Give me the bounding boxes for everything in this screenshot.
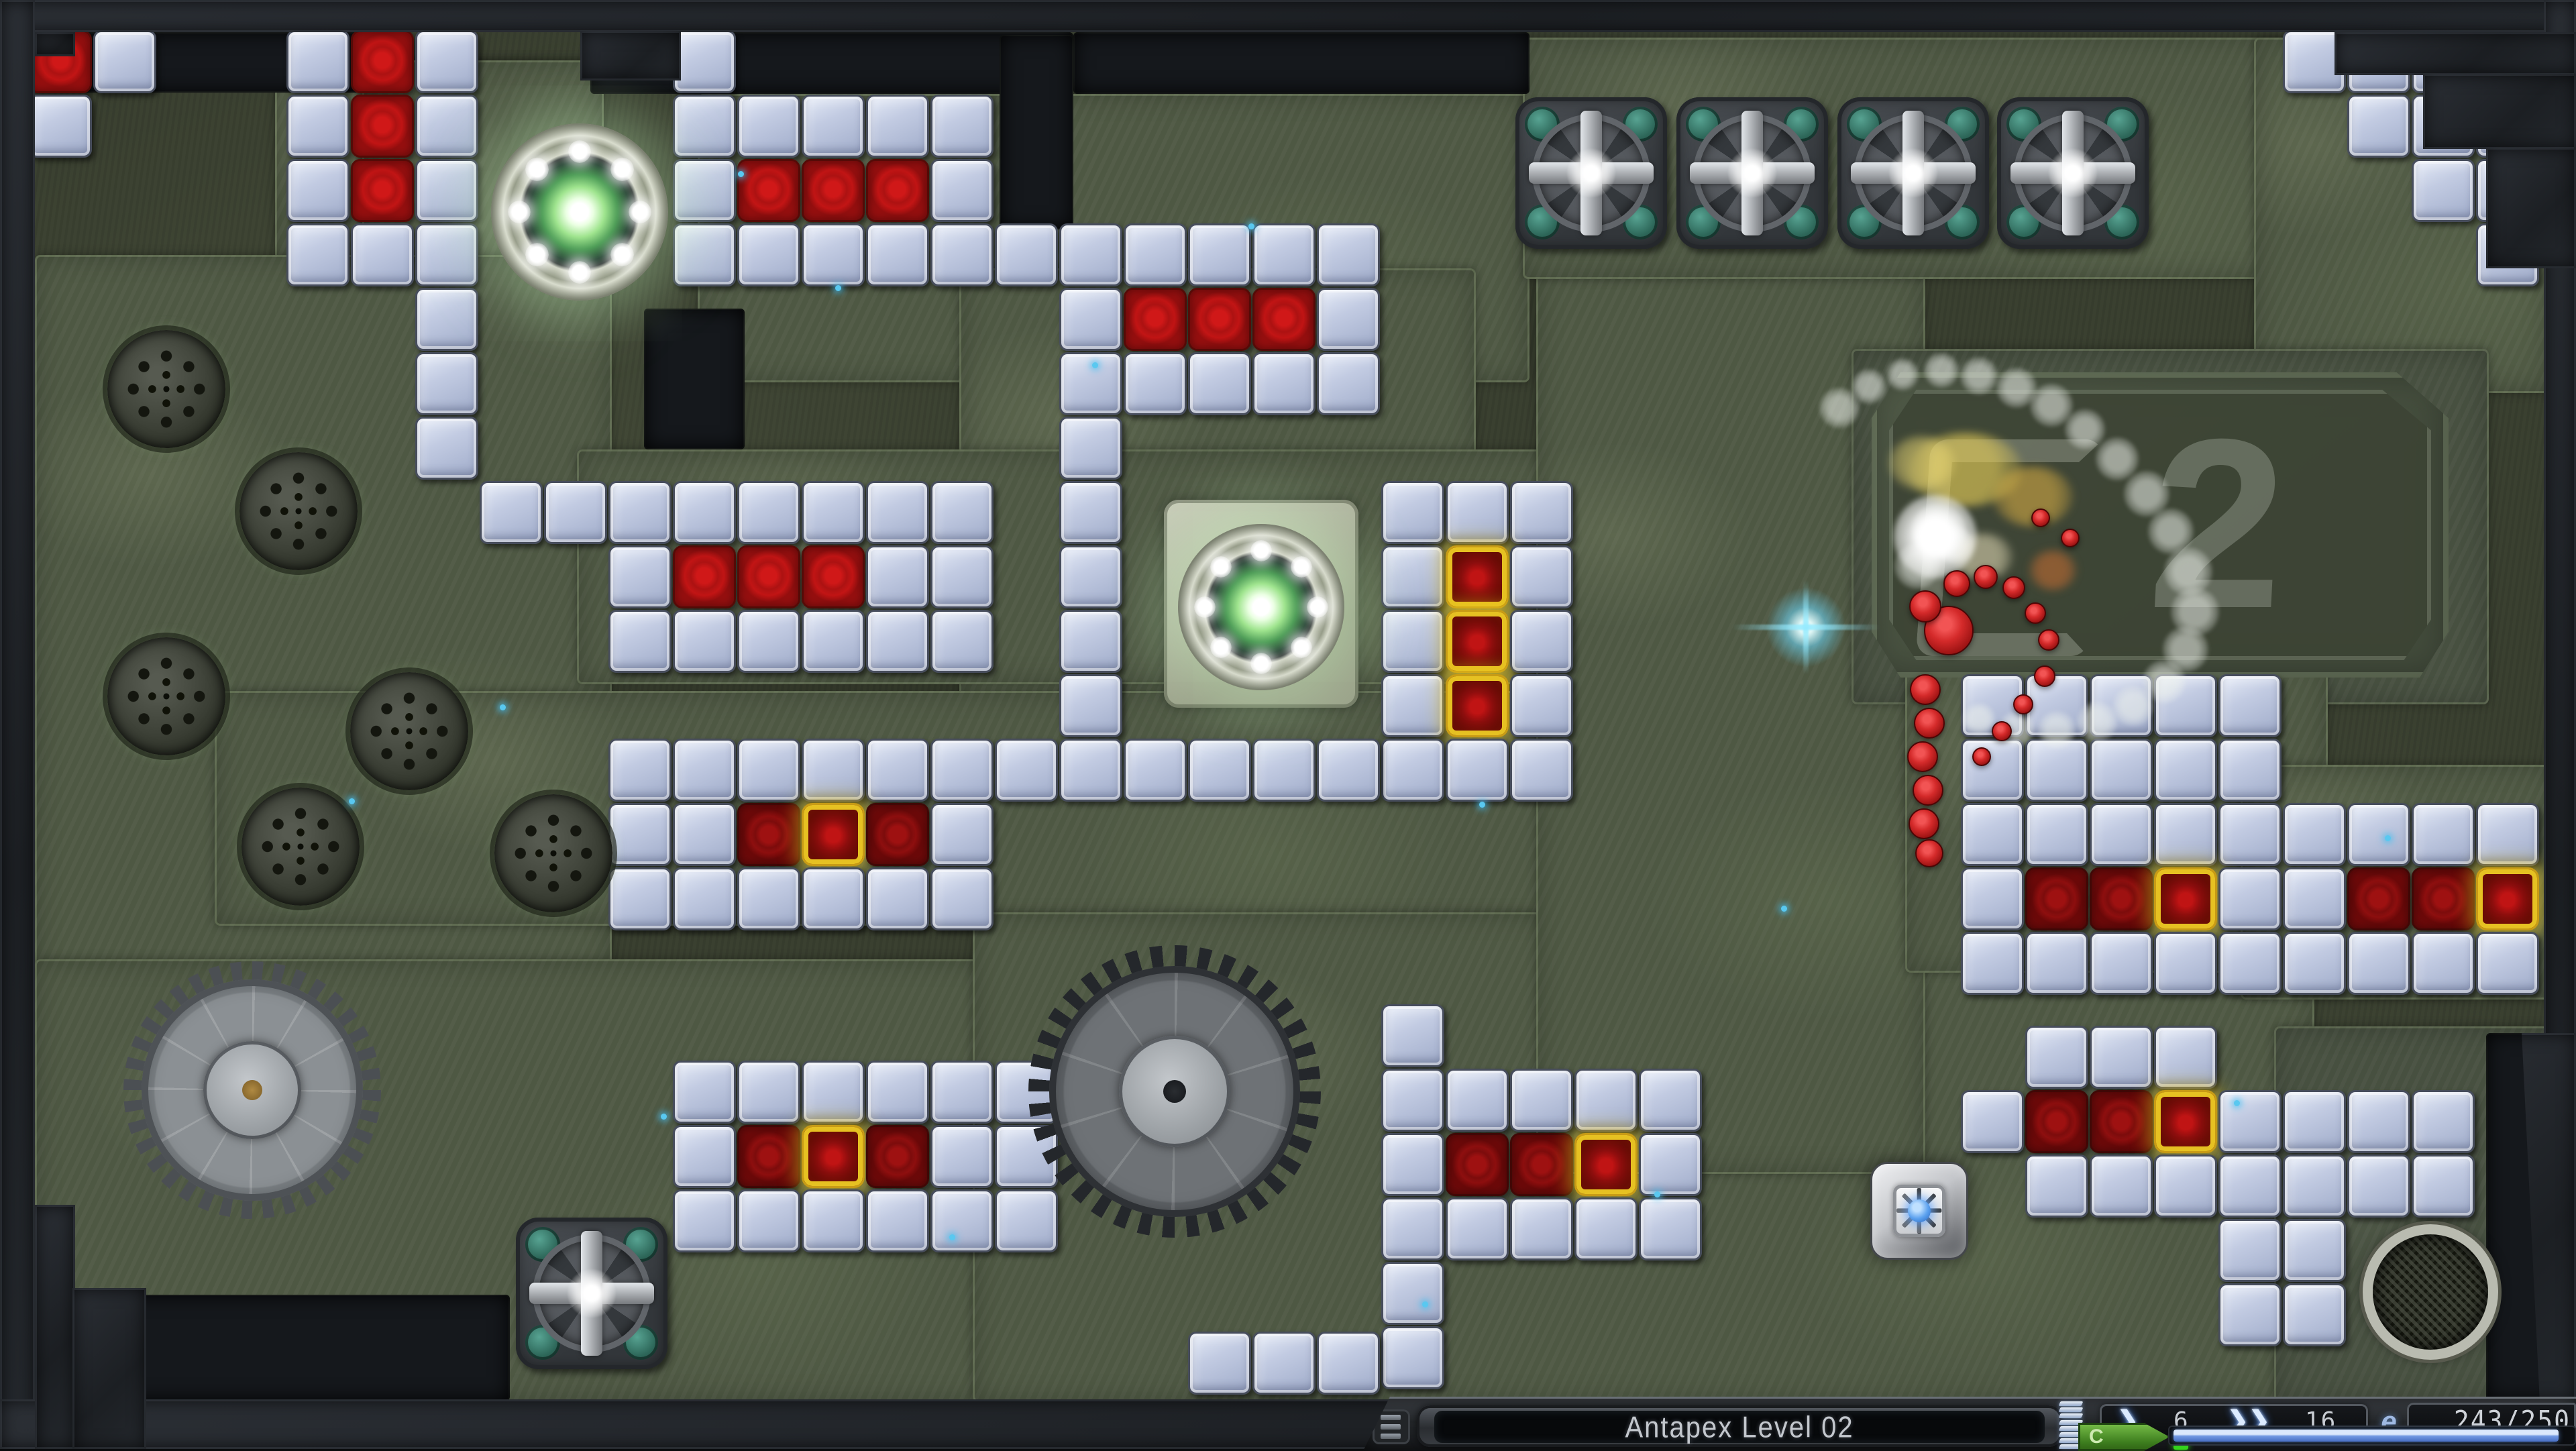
- critical-block-tile[interactable]: [2476, 867, 2539, 930]
- damaged-block-tile[interactable]: [2090, 1090, 2153, 1153]
- block-tile[interactable]: [930, 867, 994, 930]
- hud-bar: Antapex Level 02 ❯ 6 ❯❯ 16 e 243/250 C: [1363, 1397, 2576, 1451]
- enemy-creep[interactable]: [1972, 747, 1991, 766]
- enemy-creep[interactable]: [2025, 602, 2046, 624]
- damaged-block-tile[interactable]: [351, 95, 414, 158]
- block-tile[interactable]: [415, 352, 478, 415]
- block-tile[interactable]: [1381, 1133, 1444, 1196]
- block-tile[interactable]: [1252, 352, 1316, 415]
- block-tile[interactable]: [1252, 223, 1316, 286]
- block-tile[interactable]: [1317, 352, 1380, 415]
- block-tile[interactable]: [1059, 288, 1122, 351]
- block-tile[interactable]: [1381, 481, 1444, 544]
- block-tile[interactable]: [1059, 739, 1122, 802]
- ladder-slot: [2059, 1407, 2084, 1412]
- damaged-block-tile[interactable]: [1446, 1133, 1509, 1196]
- pit-region: [644, 309, 745, 449]
- block-tile[interactable]: [2154, 803, 2217, 866]
- damaged-block-tile[interactable]: [866, 803, 929, 866]
- portal-lamp: [1250, 653, 1272, 674]
- block-tile[interactable]: [866, 610, 929, 673]
- enemy-creep[interactable]: [1915, 839, 1943, 867]
- enemy-creep[interactable]: [1943, 570, 1970, 597]
- portal-lamp: [1194, 596, 1216, 618]
- block-tile[interactable]: [415, 30, 478, 93]
- block-tile[interactable]: [673, 159, 736, 222]
- map-frame: [2334, 32, 2576, 75]
- vent-grate: [107, 330, 225, 448]
- damaged-block-tile[interactable]: [2025, 867, 2088, 930]
- block-tile[interactable]: [415, 288, 478, 351]
- block-tile[interactable]: [737, 95, 800, 158]
- damaged-block-tile[interactable]: [737, 1125, 800, 1188]
- block-tile[interactable]: [1059, 352, 1122, 415]
- block-tile[interactable]: [930, 803, 994, 866]
- block-tile[interactable]: [2283, 932, 2346, 995]
- block-tile[interactable]: [673, 803, 736, 866]
- enemy-creep[interactable]: [2002, 576, 2025, 599]
- block-tile[interactable]: [737, 1061, 800, 1124]
- block-tile[interactable]: [2025, 1026, 2088, 1089]
- portal-lamp: [1210, 556, 1232, 578]
- block-tile[interactable]: [866, 95, 929, 158]
- block-tile[interactable]: [737, 1189, 800, 1252]
- damaged-block-tile[interactable]: [2347, 867, 2410, 930]
- block-tile[interactable]: [415, 417, 478, 480]
- block-tile[interactable]: [1188, 352, 1251, 415]
- block-tile[interactable]: [2283, 1154, 2346, 1218]
- block-tile[interactable]: [1381, 1262, 1444, 1325]
- ladder-slot: [2059, 1413, 2084, 1418]
- damaged-block-tile[interactable]: [1510, 1133, 1573, 1196]
- enemy-creep[interactable]: [1914, 708, 1945, 739]
- block-tile[interactable]: [802, 1189, 865, 1252]
- block-tile[interactable]: [2090, 803, 2153, 866]
- portal-lamp: [1291, 637, 1312, 658]
- block-tile[interactable]: [1639, 1133, 1702, 1196]
- block-tile[interactable]: [415, 159, 478, 222]
- block-tile[interactable]: [930, 95, 994, 158]
- damaged-block-tile[interactable]: [1124, 288, 1187, 351]
- level-name: Antapex Level 02: [1434, 1410, 2045, 1445]
- block-tile[interactable]: [673, 610, 736, 673]
- explosion-flame: [2029, 550, 2076, 590]
- critical-block-tile[interactable]: [1574, 1133, 1638, 1196]
- block-tile[interactable]: [802, 1061, 865, 1124]
- block-tile[interactable]: [1124, 223, 1187, 286]
- portal-lamp: [1307, 596, 1328, 618]
- block-tile[interactable]: [673, 481, 736, 544]
- block-tile[interactable]: [930, 481, 994, 544]
- critical-block-tile[interactable]: [802, 803, 865, 866]
- block-tile[interactable]: [1252, 739, 1316, 802]
- block-tile[interactable]: [802, 223, 865, 286]
- smoke-puff: [2096, 437, 2139, 480]
- portal-lamp: [508, 201, 531, 223]
- fan-unit: [1837, 97, 1989, 249]
- map-frame: [35, 32, 75, 56]
- vent-grate: [239, 452, 358, 570]
- map-frame: [2423, 74, 2576, 149]
- block-tile[interactable]: [1510, 545, 1573, 608]
- gear-wheel: [123, 961, 381, 1219]
- energy-spark: [2234, 1100, 2240, 1106]
- block-tile[interactable]: [673, 1189, 736, 1252]
- block-tile[interactable]: [415, 95, 478, 158]
- fan-unit: [1997, 97, 2149, 249]
- fan-core: [1728, 149, 1776, 197]
- enemy-creep[interactable]: [1907, 741, 1938, 772]
- enemy-creep[interactable]: [1909, 808, 1939, 839]
- block-tile[interactable]: [1381, 1069, 1444, 1132]
- block-tile[interactable]: [2347, 1090, 2410, 1153]
- block-tile[interactable]: [1961, 867, 2024, 930]
- block-tile[interactable]: [995, 1189, 1058, 1252]
- block-tile[interactable]: [930, 159, 994, 222]
- block-tile[interactable]: [1059, 223, 1122, 286]
- block-tile[interactable]: [866, 1189, 929, 1252]
- block-tile[interactable]: [866, 739, 929, 802]
- block-tile[interactable]: [1188, 1332, 1251, 1395]
- block-tile[interactable]: [1059, 481, 1122, 544]
- block-tile[interactable]: [1510, 1069, 1573, 1132]
- energy-spark: [1092, 362, 1098, 368]
- energy-portal: [491, 123, 668, 301]
- portal-lamp: [610, 243, 633, 266]
- enemy-creep[interactable]: [2038, 629, 2059, 651]
- block-tile[interactable]: [1381, 674, 1444, 737]
- enemy-creep[interactable]: [1974, 565, 1998, 589]
- block-tile[interactable]: [802, 95, 865, 158]
- fan-core: [2049, 149, 2097, 197]
- block-tile[interactable]: [1639, 1069, 1702, 1132]
- block-tile[interactable]: [415, 223, 478, 286]
- block-tile[interactable]: [1961, 739, 2024, 802]
- block-tile[interactable]: [1574, 1197, 1638, 1260]
- block-tile[interactable]: [1124, 352, 1187, 415]
- block-tile[interactable]: [930, 739, 994, 802]
- block-tile[interactable]: [2347, 932, 2410, 995]
- pit-region: [1073, 32, 1529, 94]
- fan-unit: [1515, 97, 1667, 249]
- smoke-puff: [2113, 686, 2153, 726]
- critical-block-tile[interactable]: [1446, 674, 1509, 737]
- energy-spark: [835, 285, 841, 291]
- block-tile[interactable]: [802, 867, 865, 930]
- block-tile[interactable]: [1639, 1197, 1702, 1260]
- vent-grate: [107, 637, 225, 755]
- block-tile[interactable]: [930, 1125, 994, 1188]
- energy-spark: [1654, 1191, 1660, 1197]
- enemy-creep[interactable]: [2061, 529, 2080, 547]
- portal-lamp: [568, 140, 591, 163]
- enemy-creep[interactable]: [1992, 721, 2012, 741]
- block-tile[interactable]: [673, 1125, 736, 1188]
- block-tile[interactable]: [673, 1061, 736, 1124]
- damaged-block-tile[interactable]: [673, 545, 736, 608]
- block-tile[interactable]: [2283, 803, 2346, 866]
- block-tile[interactable]: [1381, 545, 1444, 608]
- block-tile[interactable]: [1510, 610, 1573, 673]
- block-tile[interactable]: [2090, 932, 2153, 995]
- smoke-puff: [2077, 702, 2117, 742]
- fan-unit: [516, 1218, 667, 1369]
- damaged-block-tile[interactable]: [866, 1125, 929, 1188]
- block-tile[interactable]: [29, 95, 92, 158]
- block-tile[interactable]: [737, 223, 800, 286]
- block-tile[interactable]: [1446, 739, 1509, 802]
- block-tile[interactable]: [2154, 932, 2217, 995]
- pit-region: [1000, 35, 1073, 229]
- critical-block-tile[interactable]: [1446, 610, 1509, 673]
- damaged-block-tile[interactable]: [2412, 867, 2475, 930]
- damaged-block-tile[interactable]: [802, 545, 865, 608]
- energy-spark: [1248, 223, 1254, 229]
- block-tile[interactable]: [2412, 1090, 2475, 1153]
- block-tile[interactable]: [2218, 1090, 2282, 1153]
- block-tile[interactable]: [2218, 867, 2282, 930]
- damaged-block-tile[interactable]: [351, 30, 414, 93]
- vent-grate: [494, 794, 612, 912]
- portal-lamp: [1210, 637, 1232, 658]
- block-tile[interactable]: [286, 159, 350, 222]
- block-tile[interactable]: [930, 1189, 994, 1252]
- smoke-puff: [1960, 357, 1998, 394]
- block-tile[interactable]: [608, 867, 672, 930]
- block-tile[interactable]: [2154, 1026, 2217, 1089]
- energy-spark: [949, 1234, 955, 1240]
- map-frame: [72, 1288, 146, 1449]
- block-tile[interactable]: [1381, 1197, 1444, 1260]
- block-tile[interactable]: [608, 481, 672, 544]
- block-tile[interactable]: [1188, 739, 1251, 802]
- block-tile[interactable]: [286, 223, 350, 286]
- block-tile[interactable]: [2283, 867, 2346, 930]
- energy-spark: [661, 1114, 667, 1120]
- block-tile[interactable]: [2025, 932, 2088, 995]
- enemy-creep[interactable]: [2013, 694, 2033, 714]
- fan-unit: [1676, 97, 1828, 249]
- block-tile[interactable]: [2218, 803, 2282, 866]
- portal-lamp: [568, 261, 591, 284]
- vent-grate: [241, 788, 360, 906]
- energy-spark: [1422, 1301, 1428, 1307]
- block-tile[interactable]: [608, 610, 672, 673]
- block-tile[interactable]: [2218, 1219, 2282, 1282]
- block-tile[interactable]: [1188, 223, 1251, 286]
- block-tile[interactable]: [1961, 803, 2024, 866]
- map-frame: [35, 1205, 75, 1449]
- block-tile[interactable]: [1059, 417, 1122, 480]
- damaged-block-tile[interactable]: [737, 159, 800, 222]
- block-tile[interactable]: [866, 1061, 929, 1124]
- portal-lamp: [1291, 556, 1312, 578]
- block-tile[interactable]: [1381, 1004, 1444, 1067]
- block-tile[interactable]: [737, 867, 800, 930]
- block-tile[interactable]: [1510, 674, 1573, 737]
- portal-lamp: [629, 201, 651, 223]
- block-tile[interactable]: [1059, 674, 1122, 737]
- explosion-flame: [1888, 436, 1955, 490]
- fan-core: [568, 1269, 616, 1318]
- damaged-block-tile[interactable]: [351, 159, 414, 222]
- enemy-creep[interactable]: [1913, 775, 1943, 806]
- block-tile[interactable]: [2347, 95, 2410, 158]
- block-tile[interactable]: [2412, 932, 2475, 995]
- block-tile[interactable]: [737, 610, 800, 673]
- energy-spark: [1781, 906, 1787, 912]
- block-tile[interactable]: [1510, 739, 1573, 802]
- block-tile[interactable]: [2154, 1154, 2217, 1218]
- block-tile[interactable]: [93, 30, 156, 93]
- block-tile[interactable]: [930, 610, 994, 673]
- damaged-block-tile[interactable]: [2090, 867, 2153, 930]
- block-tile[interactable]: [2090, 1154, 2153, 1218]
- damaged-block-tile[interactable]: [866, 159, 929, 222]
- block-tile[interactable]: [1381, 1326, 1444, 1389]
- critical-block-tile[interactable]: [2154, 867, 2217, 930]
- damaged-block-tile[interactable]: [1188, 288, 1251, 351]
- block-tile[interactable]: [608, 545, 672, 608]
- portal-lamp: [525, 243, 548, 266]
- block-tile[interactable]: [2090, 739, 2153, 802]
- block-tile[interactable]: [673, 739, 736, 802]
- block-tile[interactable]: [2412, 1154, 2475, 1218]
- block-tile[interactable]: [286, 30, 350, 93]
- block-tile[interactable]: [608, 803, 672, 866]
- damaged-block-tile[interactable]: [2025, 1090, 2088, 1153]
- critical-block-tile[interactable]: [802, 1125, 865, 1188]
- block-tile[interactable]: [2283, 1090, 2346, 1153]
- smoke-puff: [2065, 409, 2105, 449]
- map-frame: [0, 0, 35, 1449]
- block-tile[interactable]: [1317, 223, 1380, 286]
- block-tile[interactable]: [737, 481, 800, 544]
- block-tile[interactable]: [866, 481, 929, 544]
- block-tile[interactable]: [2412, 803, 2475, 866]
- block-tile[interactable]: [2218, 1154, 2282, 1218]
- block-tile[interactable]: [866, 545, 929, 608]
- block-tile[interactable]: [1381, 610, 1444, 673]
- block-tile[interactable]: [2476, 932, 2539, 995]
- block-tile[interactable]: [1961, 1090, 2024, 1153]
- block-tile[interactable]: [2476, 803, 2539, 866]
- block-tile[interactable]: [930, 545, 994, 608]
- block-tile[interactable]: [2090, 1026, 2153, 1089]
- block-tile[interactable]: [2218, 1283, 2282, 1346]
- block-tile[interactable]: [1317, 739, 1380, 802]
- block-tile[interactable]: [1381, 739, 1444, 802]
- mesh-vent: [2363, 1224, 2498, 1360]
- block-tile[interactable]: [930, 223, 994, 286]
- enemy-creep[interactable]: [1910, 674, 1941, 705]
- block-tile[interactable]: [1510, 1197, 1573, 1260]
- block-tile[interactable]: [2154, 739, 2217, 802]
- block-tile[interactable]: [1124, 739, 1187, 802]
- block-tile[interactable]: [2347, 1154, 2410, 1218]
- block-tile[interactable]: [1446, 481, 1509, 544]
- block-tile[interactable]: [995, 223, 1058, 286]
- block-tile[interactable]: [544, 481, 607, 544]
- smoke-puff: [2038, 711, 2076, 749]
- block-tile[interactable]: [2025, 803, 2088, 866]
- block-tile[interactable]: [866, 867, 929, 930]
- vent-grate: [350, 672, 468, 790]
- energy-spark: [1479, 802, 1485, 808]
- damaged-block-tile[interactable]: [737, 803, 800, 866]
- block-tile[interactable]: [1317, 288, 1380, 351]
- block-tile[interactable]: [351, 223, 414, 286]
- block-tile[interactable]: [995, 739, 1058, 802]
- ladder-slot: [2059, 1401, 2084, 1406]
- block-tile[interactable]: [286, 95, 350, 158]
- energy-bar-fill: [2173, 1430, 2559, 1442]
- fan-core: [1889, 149, 1937, 197]
- block-tile[interactable]: [930, 1061, 994, 1124]
- block-tile[interactable]: [673, 223, 736, 286]
- block-tile[interactable]: [1446, 1197, 1509, 1260]
- energy-spark: [2385, 835, 2391, 841]
- block-tile[interactable]: [1961, 932, 2024, 995]
- portal-lamp: [525, 158, 548, 180]
- block-tile[interactable]: [1059, 610, 1122, 673]
- block-tile[interactable]: [2218, 932, 2282, 995]
- game-map: 2: [0, 0, 2576, 1449]
- block-tile[interactable]: [802, 610, 865, 673]
- block-tile[interactable]: [2283, 1283, 2346, 1346]
- smoke-puff: [1924, 353, 1959, 388]
- block-tile[interactable]: [480, 481, 543, 544]
- tower-energy-orb: [1908, 1199, 1931, 1222]
- block-tile[interactable]: [673, 30, 736, 93]
- block-tile[interactable]: [608, 739, 672, 802]
- block-tile[interactable]: [1059, 545, 1122, 608]
- damaged-block-tile[interactable]: [802, 159, 865, 222]
- enemy-creep[interactable]: [2034, 665, 2055, 687]
- block-tile[interactable]: [802, 481, 865, 544]
- block-tile[interactable]: [1510, 481, 1573, 544]
- block-tile[interactable]: [1317, 1332, 1380, 1395]
- enemy-creep[interactable]: [2031, 508, 2050, 527]
- critical-block-tile[interactable]: [1446, 545, 1509, 608]
- turret-tower[interactable]: [1870, 1162, 1968, 1260]
- damaged-block-tile[interactable]: [1252, 288, 1316, 351]
- block-tile[interactable]: [1574, 1069, 1638, 1132]
- block-tile[interactable]: [2218, 674, 2282, 737]
- block-tile[interactable]: [2347, 803, 2410, 866]
- block-tile[interactable]: [2283, 1219, 2346, 1282]
- block-tile[interactable]: [673, 95, 736, 158]
- explosion-flash: [1894, 495, 1977, 578]
- damaged-block-tile[interactable]: [737, 545, 800, 608]
- block-tile[interactable]: [1252, 1332, 1316, 1395]
- map-frame: [580, 31, 681, 80]
- enemy-creep[interactable]: [1909, 590, 1941, 623]
- block-tile[interactable]: [737, 739, 800, 802]
- critical-block-tile[interactable]: [2154, 1090, 2217, 1153]
- block-tile[interactable]: [866, 223, 929, 286]
- block-tile[interactable]: [802, 739, 865, 802]
- energy-portal: [1178, 524, 1344, 690]
- block-tile[interactable]: [2412, 159, 2475, 222]
- block-tile[interactable]: [673, 867, 736, 930]
- fan-core: [1567, 149, 1615, 197]
- block-tile[interactable]: [2025, 1154, 2088, 1218]
- gear-wheel: [1028, 945, 1321, 1238]
- block-tile[interactable]: [2218, 739, 2282, 802]
- portal-lamp: [1250, 540, 1272, 561]
- block-tile[interactable]: [1446, 1069, 1509, 1132]
